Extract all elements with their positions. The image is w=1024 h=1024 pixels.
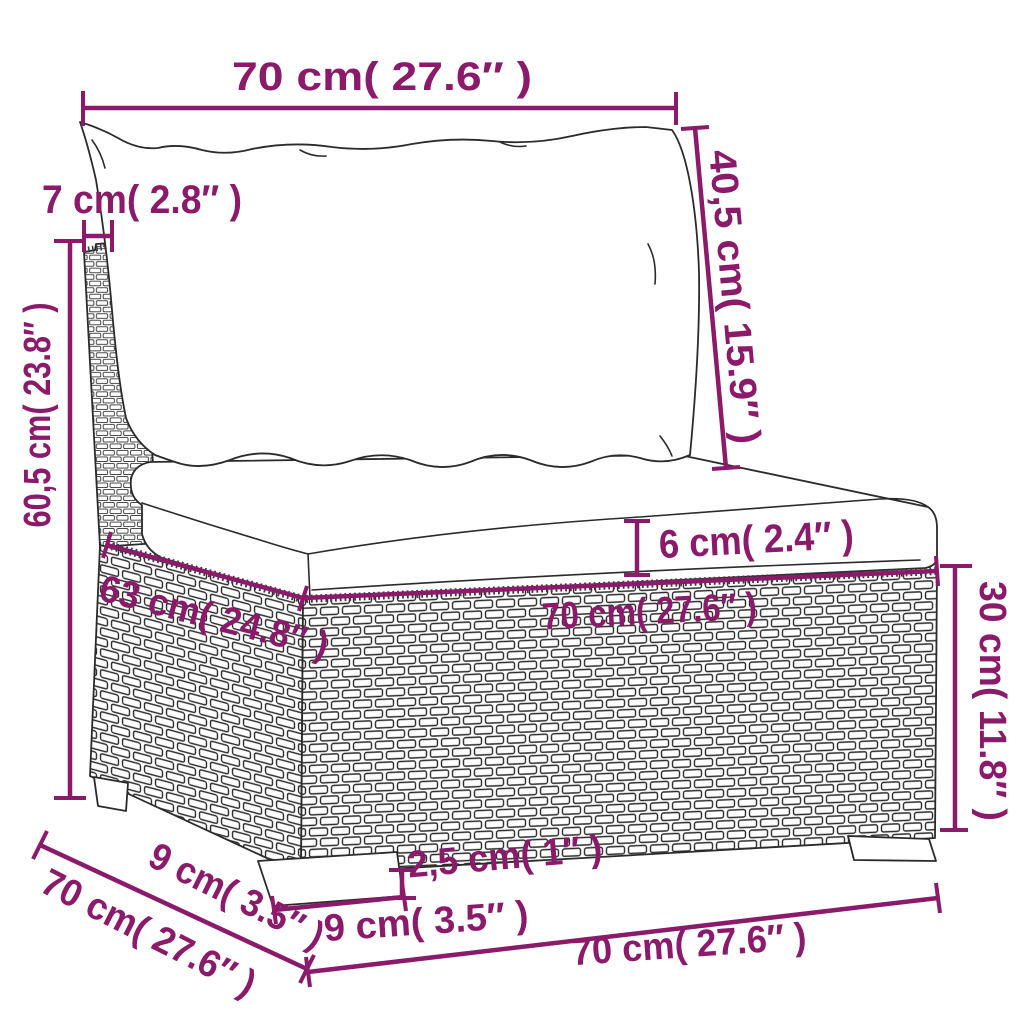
dim-label-top-width: 70 cm( 27.6″ ) (232, 55, 532, 99)
front-right-leg (848, 836, 936, 861)
diagram-canvas: 70 cm( 27.6″ ) 7 cm( 2.8″ ) 40,5 cm( 15.… (0, 0, 1024, 1024)
dimension-top-width: 70 cm( 27.6″ ) (83, 55, 676, 126)
back-cushion (80, 122, 699, 467)
furniture-drawing (80, 122, 937, 906)
dim-label-total-width: 70 cm( 27.6″ ) (570, 916, 807, 974)
dimension-base-height: 30 cm( 11.8″ ) (940, 566, 1013, 830)
dim-label-base-height: 30 cm( 11.8″ ) (971, 581, 1013, 821)
back-left-leg (94, 777, 128, 811)
dim-label-back-thickness: 7 cm( 2.8″ ) (42, 178, 242, 222)
dimension-diagram: 70 cm( 27.6″ ) 7 cm( 2.8″ ) 40,5 cm( 15.… (0, 0, 1024, 1024)
dimension-total-height: 60,5 cm( 23.8″ ) (17, 241, 86, 798)
dim-label-total-height: 60,5 cm( 23.8″ ) (17, 303, 59, 528)
